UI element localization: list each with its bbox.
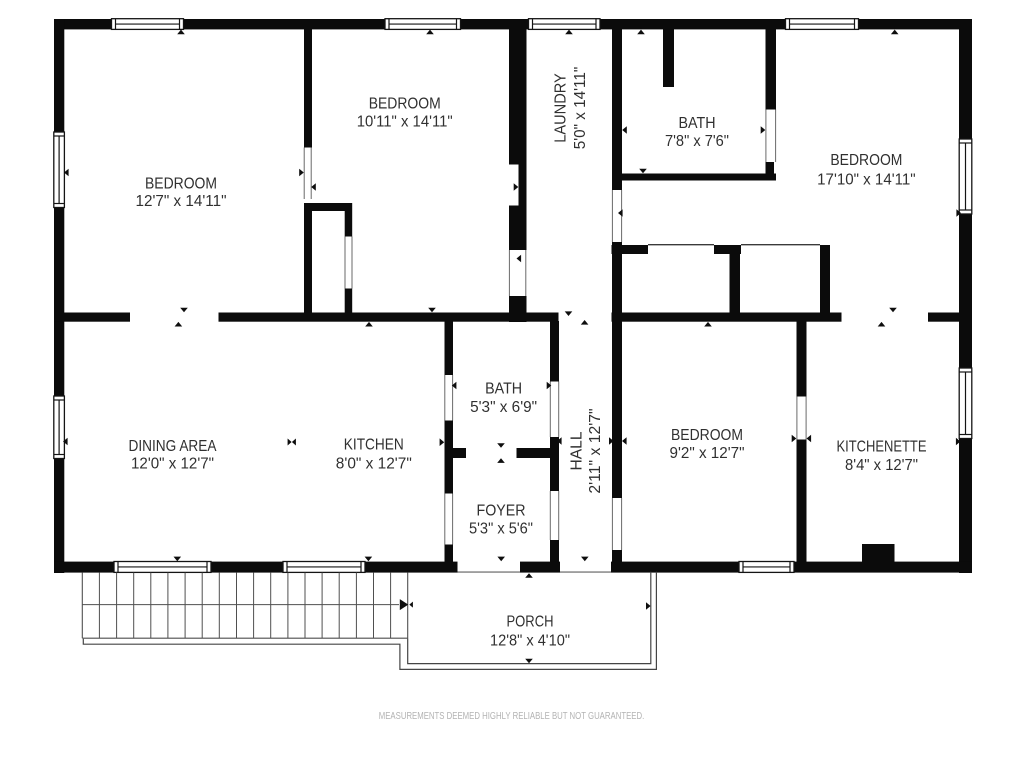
svg-text:BEDROOM12'7" x 14'11": BEDROOM12'7" x 14'11" xyxy=(136,175,227,210)
svg-text:BEDROOM10'11" x 14'11": BEDROOM10'11" x 14'11" xyxy=(357,95,453,130)
svg-text:BEDROOM9'2" x 12'7": BEDROOM9'2" x 12'7" xyxy=(670,427,745,462)
svg-text:MEASUREMENTS DEEMED HIGHLY REL: MEASUREMENTS DEEMED HIGHLY RELIABLE BUT … xyxy=(379,711,645,722)
svg-text:KITCHENETTE8'4" x 12'7": KITCHENETTE8'4" x 12'7" xyxy=(837,439,927,474)
svg-text:FOYER5'3" x 5'6": FOYER5'3" x 5'6" xyxy=(469,502,533,537)
svg-text:DINING AREA12'0" x 12'7": DINING AREA12'0" x 12'7" xyxy=(129,438,217,472)
